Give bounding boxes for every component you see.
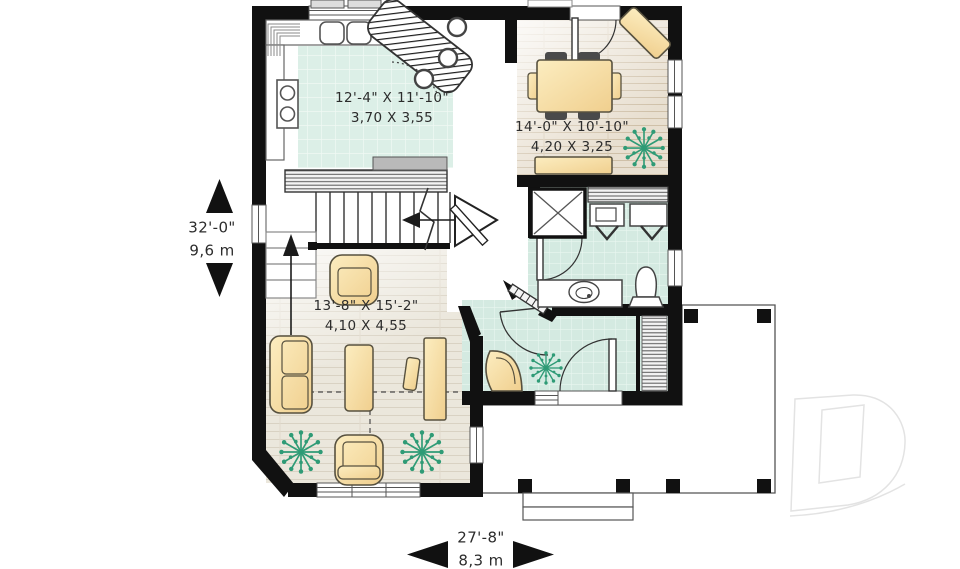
bar-stool [415,70,433,88]
desk [424,338,446,420]
entry-closet [642,316,667,391]
dining-room-dimensions-label: 14'-0" X 10'-10" 4,20 X 3,25 [515,117,629,158]
dining-table [537,60,612,112]
stove [277,80,298,128]
shower [531,189,585,237]
overall-depth-imperial: 32'-0" [188,217,235,240]
overall-width-label: 27'-8" 8,3 m [457,527,504,569]
dining-room-dimensions-imperial: 14'-0" X 10'-10" [515,117,629,137]
buffet [535,157,612,174]
bar-stool [439,49,457,67]
washer [590,204,624,226]
living-room-dimensions-label: 13'-8" X 15'-2" 4,10 X 4,55 [314,296,419,337]
stair-half-wall [285,170,447,192]
drummond-d-logo [790,395,905,516]
coffee-table [345,345,373,411]
laundry-counter [588,187,668,202]
living-room-dimensions-metric: 4,10 X 4,55 [314,316,419,336]
arrow-up-icon [206,179,233,213]
floor-plan-page: 12'-4" X 11'-10" 3,70 X 3,55 14'-0" X 10… [0,0,960,569]
arrow-left-icon [407,541,448,568]
sofa [270,336,312,413]
bar-stool [448,18,466,36]
vanity-sink [538,280,622,307]
dining-room-dimensions-metric: 4,20 X 3,25 [515,137,629,157]
arrow-down-icon [206,263,233,297]
overall-depth-metric: 9,6 m [188,239,235,262]
dryer [630,204,667,226]
overall-depth-label: 32'-0" 9,6 m [188,217,235,262]
living-room-dimensions-imperial: 13'-8" X 15'-2" [314,296,419,316]
kitchen-dimensions-imperial: 12'-4" X 11'-10" [335,88,449,108]
porch-step [523,493,633,520]
arrow-right-icon [513,541,554,568]
floor-plan-graphic [0,0,960,569]
armchair-bottom [335,435,383,485]
kitchen-dimensions-label: 12'-4" X 11'-10" 3,70 X 3,55 [335,88,449,129]
overall-width-imperial: 27'-8" [457,527,504,550]
kitchen-dimensions-metric: 3,70 X 3,55 [335,108,449,128]
overall-width-metric: 8,3 m [457,549,504,569]
